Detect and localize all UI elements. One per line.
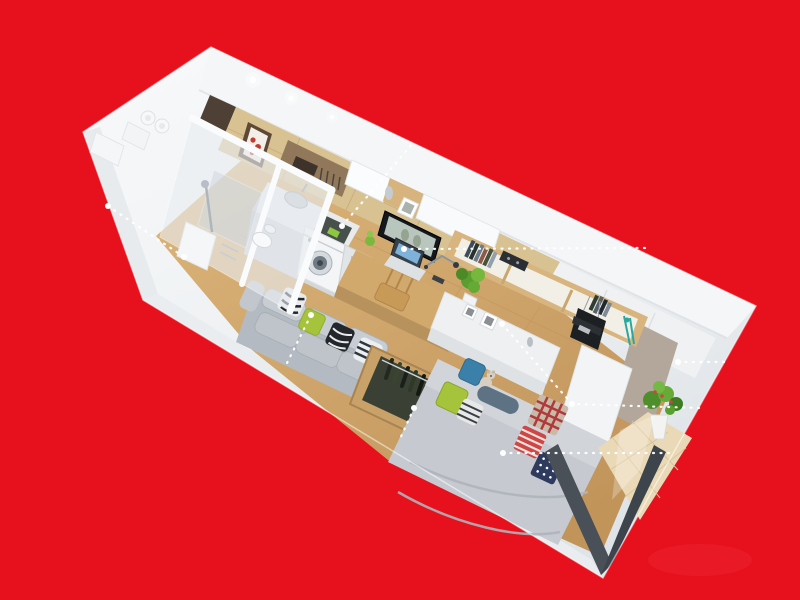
callout-dot-bed-head [499,321,505,327]
background-artifact [648,544,752,576]
callout-dot-wardrobe [411,405,417,411]
floorplan-poster [0,0,800,600]
shower-head [201,180,209,188]
callout-dot-bathroom [181,254,187,260]
callout-dot-sofa [308,312,314,318]
callout-dot-bed [500,450,506,456]
figurine [527,337,533,347]
callout-dot-bathroom [105,203,111,209]
callout-dot-bed-head [569,401,575,407]
callout-dot-tv-wall [401,246,407,252]
figurine [385,186,393,200]
callout-dot-balcony-window [675,359,681,365]
callout-dot-kitchen [339,223,345,229]
